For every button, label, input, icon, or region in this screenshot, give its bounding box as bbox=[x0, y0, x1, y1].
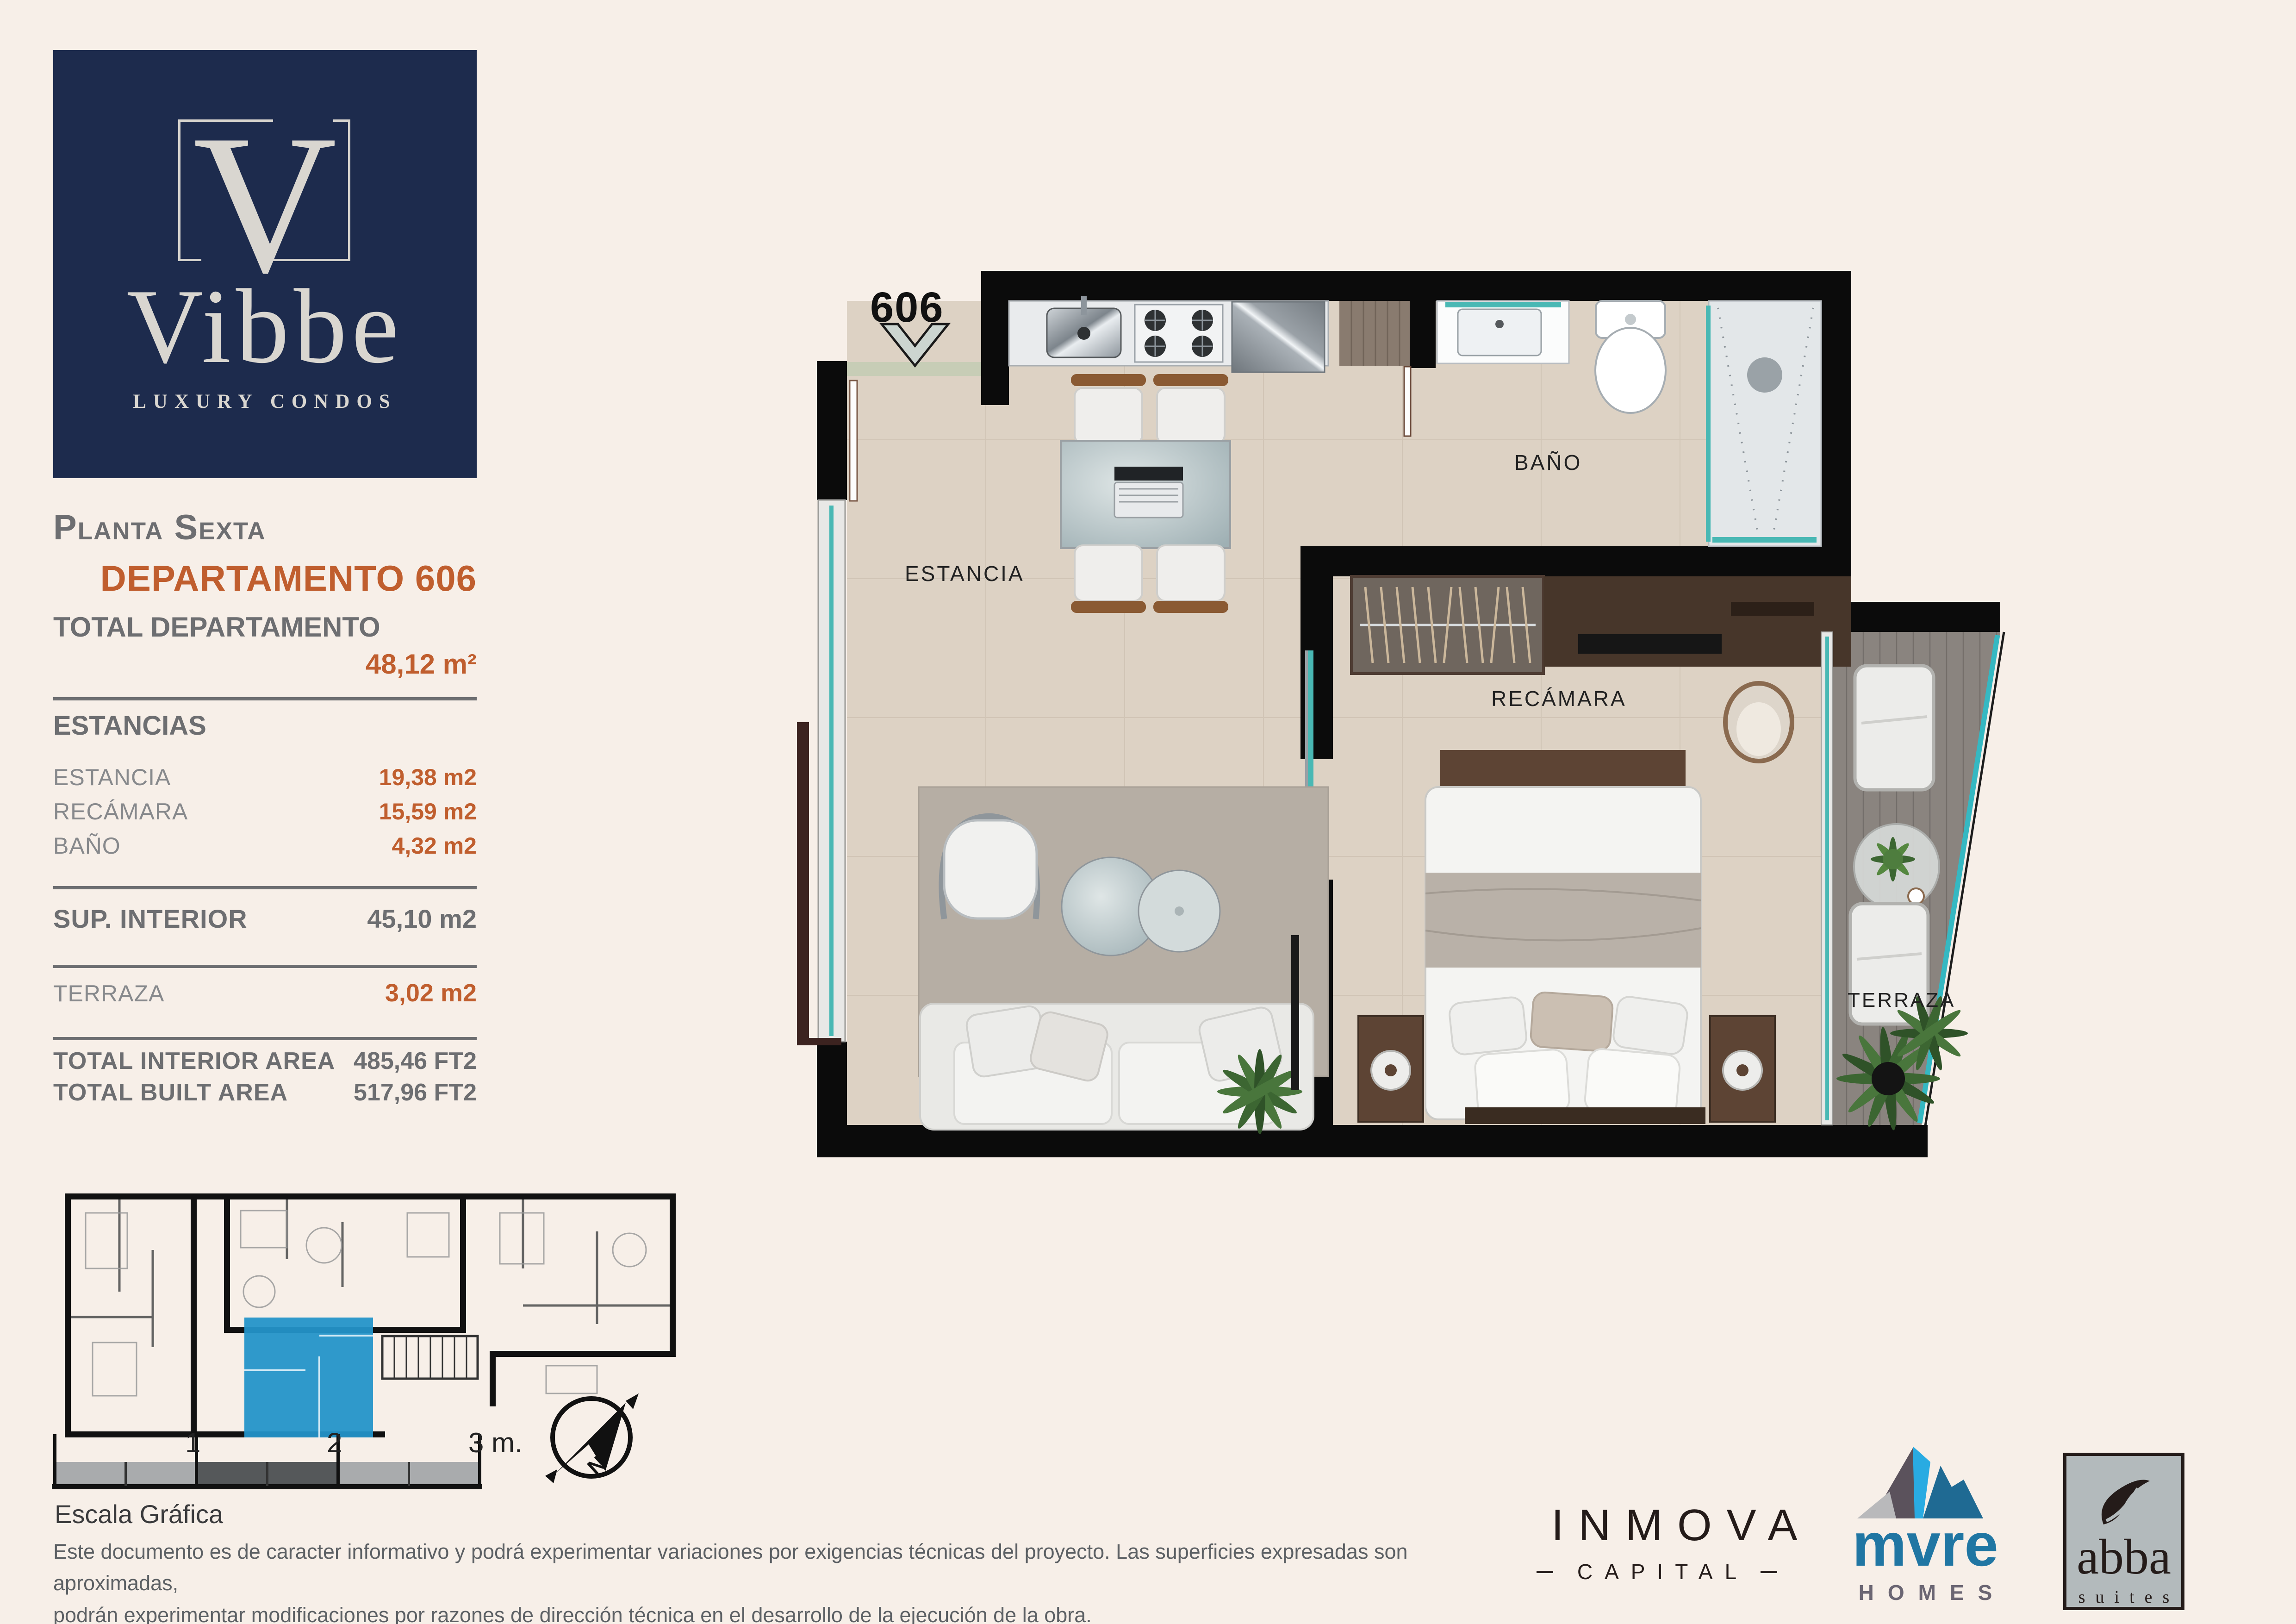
scale-tick-3: 3 m. bbox=[468, 1427, 561, 1459]
row-value: 4,32 m2 bbox=[392, 832, 477, 859]
mure-name: mvre bbox=[1844, 1514, 2006, 1575]
row-value: 45,10 m2 bbox=[367, 904, 477, 934]
brochure-page: V Vibbe LUXURY CONDOS Planta Sexta DEPAR… bbox=[0, 0, 2296, 1624]
total-departamento-label: TOTAL DEPARTAMENTO bbox=[53, 611, 477, 643]
scale-bar bbox=[52, 1434, 482, 1489]
lounge-chair bbox=[1855, 666, 1934, 790]
row-label: TERRAZA bbox=[53, 980, 164, 1007]
row-label: TOTAL BUILT AREA bbox=[53, 1079, 288, 1106]
brand-tagline: LUXURY CONDOS bbox=[53, 390, 477, 413]
mountain-logo-icon bbox=[1844, 1444, 2006, 1521]
divider bbox=[53, 965, 477, 968]
unit-title: DEPARTAMENTO 606 bbox=[53, 557, 477, 600]
inmova-name: INMOVA bbox=[1537, 1500, 1777, 1551]
dash-icon bbox=[1761, 1571, 1777, 1573]
bath-door-leaf bbox=[1404, 367, 1411, 436]
living-tv bbox=[1291, 935, 1299, 1090]
corner-chair bbox=[1725, 683, 1792, 761]
row-value: 19,38 m2 bbox=[379, 764, 477, 791]
kitchen bbox=[1009, 296, 1328, 372]
dining-chair bbox=[1153, 545, 1228, 613]
divider bbox=[53, 1037, 477, 1040]
row-label: SUP. INTERIOR bbox=[53, 904, 248, 934]
disclaimer: Este documento es de caracter informativ… bbox=[53, 1536, 1511, 1624]
inmova-capital-logo: INMOVA CAPITAL bbox=[1537, 1500, 1777, 1584]
keyplan-highlight-unit bbox=[244, 1318, 373, 1437]
brand-logo: V Vibbe LUXURY CONDOS bbox=[53, 50, 477, 478]
row-value: 517,96 FT2 bbox=[354, 1079, 477, 1106]
bedroom-storage bbox=[1351, 576, 1851, 674]
brand-name: Vibbe bbox=[53, 268, 477, 385]
room-label-recamara: RECÁMARA bbox=[1491, 686, 1627, 711]
area-row-terraza: TERRAZA 3,02 m2 bbox=[53, 979, 477, 1007]
abba-name: abba bbox=[2066, 1532, 2181, 1582]
floor-label: Planta Sexta bbox=[53, 507, 477, 548]
table-plant bbox=[1871, 837, 1915, 881]
divider bbox=[53, 886, 477, 889]
toilet bbox=[1595, 301, 1666, 413]
entry-door-leaf bbox=[850, 381, 857, 501]
dash-icon bbox=[1537, 1571, 1553, 1573]
living-glass-door bbox=[797, 500, 845, 1045]
floor-plan bbox=[797, 271, 2004, 1157]
row-value: 15,59 m2 bbox=[379, 798, 477, 825]
mure-homes-logo: mvre HOMES bbox=[1844, 1444, 2006, 1605]
inmova-sub-label: CAPITAL bbox=[1565, 1559, 1748, 1584]
armchair bbox=[942, 816, 1037, 919]
row-label: ESTANCIA bbox=[53, 764, 171, 791]
bed-bench bbox=[1465, 1107, 1705, 1124]
row-value: 3,02 m2 bbox=[385, 979, 477, 1007]
keyplan-stair bbox=[382, 1336, 478, 1379]
bedroom-tv bbox=[1578, 634, 1722, 654]
coffee-cup bbox=[1908, 888, 1924, 904]
row-value: 485,46 FT2 bbox=[354, 1047, 477, 1075]
dining-chair bbox=[1153, 374, 1228, 443]
scale-tick-2: 2 bbox=[327, 1427, 342, 1459]
divider bbox=[53, 697, 477, 700]
area-row-recamara: RECÁMARA 15,59 m2 bbox=[53, 798, 477, 825]
mure-sub-label: HOMES bbox=[1844, 1580, 2006, 1605]
room-label-bano: BAÑO bbox=[1514, 450, 1582, 475]
kitchen-stove bbox=[1135, 305, 1223, 362]
row-label: RECÁMARA bbox=[53, 798, 188, 825]
room-label-terraza: TERRAZA bbox=[1848, 989, 1955, 1012]
leaf-icon bbox=[2095, 1473, 2153, 1530]
unit-number-label: 606 bbox=[870, 283, 944, 332]
total-built-area-row: TOTAL BUILT AREA 517,96 FT2 bbox=[53, 1079, 477, 1106]
blanket bbox=[1425, 873, 1701, 968]
estancias-heading: ESTANCIAS bbox=[53, 710, 477, 741]
area-row-sup-interior: SUP. INTERIOR 45,10 m2 bbox=[53, 904, 477, 934]
scale-tick-1: 1 bbox=[185, 1427, 200, 1459]
refrigerator bbox=[1232, 302, 1325, 372]
area-row-bano: BAÑO 4,32 m2 bbox=[53, 832, 477, 859]
shower bbox=[1706, 301, 1821, 546]
nightstand-right bbox=[1710, 1016, 1775, 1122]
total-departamento-value: 48,12 m² bbox=[53, 648, 477, 680]
dining-chair bbox=[1071, 545, 1146, 613]
terrace-glass-door bbox=[1821, 632, 1833, 1125]
dining-chair bbox=[1071, 374, 1146, 443]
area-row-estancia: ESTANCIA 19,38 m2 bbox=[53, 764, 477, 791]
row-label: BAÑO bbox=[53, 832, 121, 859]
scale-caption: Escala Gráfica bbox=[55, 1499, 223, 1529]
room-label-estancia: ESTANCIA bbox=[905, 561, 1025, 586]
disclaimer-line-2: podrán experimentar modificaciones por r… bbox=[53, 1599, 1511, 1624]
nightstand-left bbox=[1358, 1016, 1423, 1122]
living-room bbox=[919, 787, 1328, 1134]
row-label: TOTAL INTERIOR AREA bbox=[53, 1047, 335, 1075]
abba-suites-logo: abba suites bbox=[2063, 1453, 2184, 1610]
balcony-rail bbox=[797, 722, 809, 1042]
disclaimer-line-1: Este documento es de caracter informativ… bbox=[53, 1536, 1511, 1599]
abba-sub-label: suites bbox=[2066, 1587, 2181, 1607]
total-interior-area-row: TOTAL INTERIOR AREA 485,46 FT2 bbox=[53, 1047, 477, 1075]
laptop bbox=[1114, 467, 1183, 518]
